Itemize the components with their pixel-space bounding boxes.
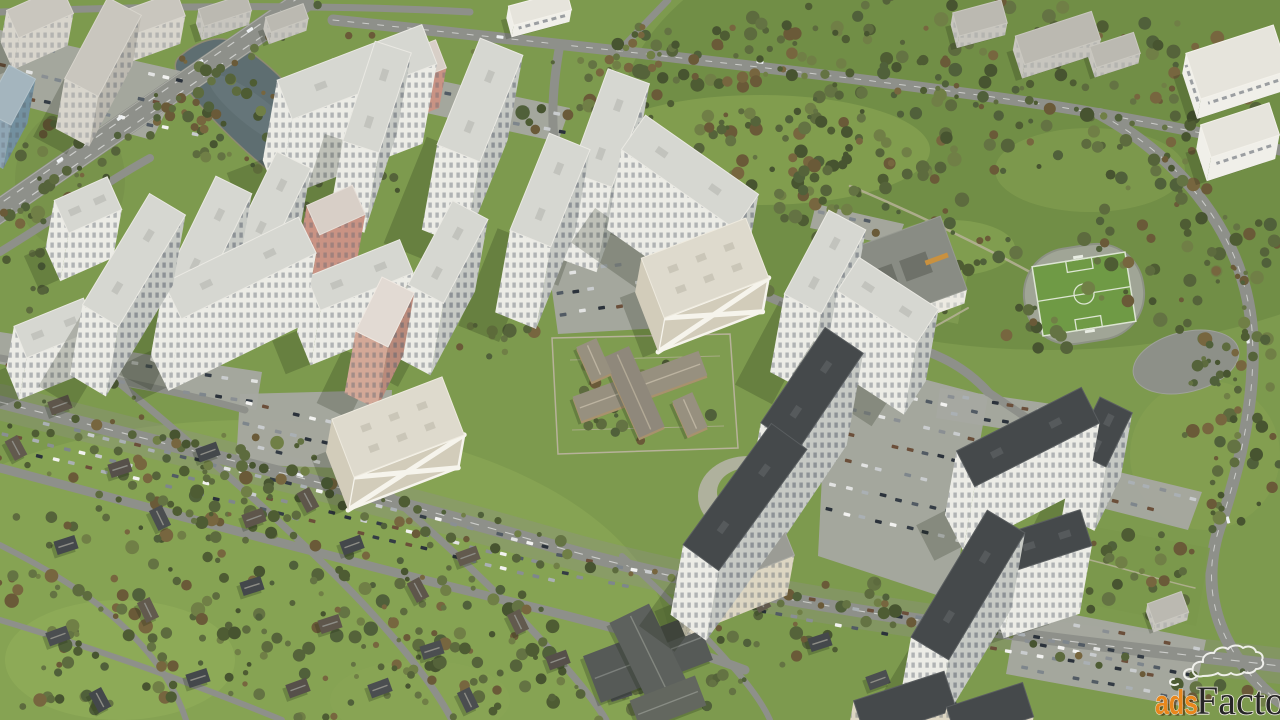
brand-prefix-text: ads [1155, 684, 1198, 720]
aerial-render: ads ads Factory [0, 0, 1280, 720]
brand-suffix-text: Factory [1196, 678, 1280, 720]
